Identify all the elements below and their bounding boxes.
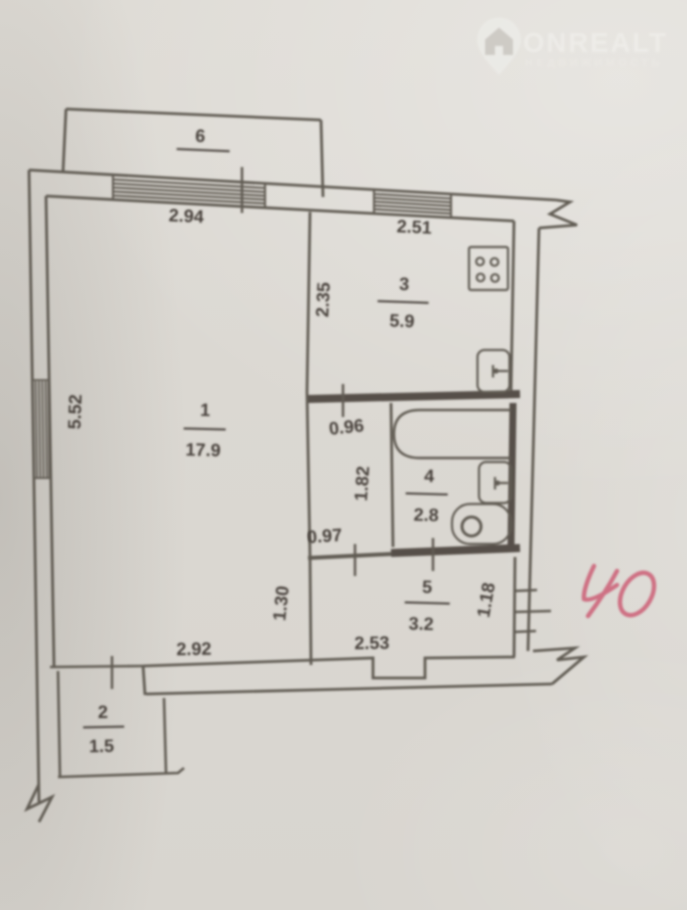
svg-text:0.97: 0.97 <box>306 525 342 547</box>
svg-text:1.18: 1.18 <box>473 581 499 619</box>
svg-text:2.94: 2.94 <box>168 205 204 227</box>
svg-text:2: 2 <box>98 702 108 722</box>
svg-text:3: 3 <box>399 274 410 294</box>
svg-text:2.51: 2.51 <box>396 216 432 238</box>
svg-text:3.2: 3.2 <box>408 614 434 635</box>
svg-text:2.8: 2.8 <box>413 505 439 526</box>
svg-text:НЕДВИЖИМОСТЬ: НЕДВИЖИМОСТЬ <box>525 57 663 69</box>
svg-text:5.52: 5.52 <box>64 394 85 430</box>
svg-text:5.9: 5.9 <box>389 311 415 332</box>
svg-text:2.53: 2.53 <box>354 633 389 654</box>
svg-text:5: 5 <box>422 577 433 597</box>
svg-text:6: 6 <box>195 126 206 146</box>
svg-text:1: 1 <box>200 400 211 420</box>
svg-text:0.96: 0.96 <box>328 415 365 439</box>
svg-text:17.9: 17.9 <box>185 440 221 461</box>
svg-text:4: 4 <box>424 466 435 486</box>
svg-text:ONREALT: ONREALT <box>523 27 668 58</box>
svg-text:1.82: 1.82 <box>351 465 373 501</box>
svg-text:1.30: 1.30 <box>269 585 293 622</box>
svg-text:2.92: 2.92 <box>176 639 211 660</box>
svg-text:2.35: 2.35 <box>312 282 334 318</box>
svg-text:1.5: 1.5 <box>89 736 114 756</box>
